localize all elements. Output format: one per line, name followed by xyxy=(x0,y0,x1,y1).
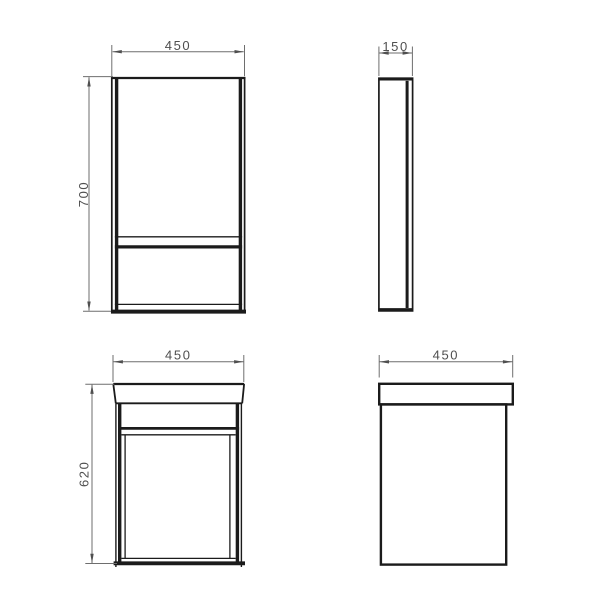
arrowhead-up xyxy=(87,77,90,87)
drawing-canvas: 450 700 150 xyxy=(0,0,601,600)
mirror-front-height-label: 700 xyxy=(76,181,91,208)
vanity-side-object-lines xyxy=(379,384,513,565)
mirror-front-dimension-lines xyxy=(83,45,245,311)
mirror-side-depth-label: 150 xyxy=(382,39,409,54)
vanity-front-object-lines xyxy=(113,384,245,567)
arrowhead-down xyxy=(90,554,93,564)
technical-drawing: 450 700 150 xyxy=(0,0,601,600)
arrowhead-right xyxy=(503,360,513,363)
vanity-side-width-label: 450 xyxy=(433,348,460,363)
vanity-front-height-label: 620 xyxy=(77,461,92,488)
arrowhead-down xyxy=(87,302,90,312)
arrowhead-right xyxy=(235,50,245,53)
vanity-side-countertop-outline xyxy=(379,384,513,405)
mirror-side-labels: 150 xyxy=(382,39,409,54)
mirror-side-object-lines xyxy=(379,78,413,311)
arrowhead-left xyxy=(113,360,123,363)
vanity-side-body-outline xyxy=(381,404,506,564)
vanity-front-labels: 450 620 xyxy=(77,348,192,487)
vanity-front-dimension-lines xyxy=(85,355,244,564)
mirror-front-width-label: 450 xyxy=(165,38,192,53)
view-mirror-side: 150 xyxy=(379,39,413,311)
vanity-front-width-label: 450 xyxy=(165,348,192,363)
arrowhead-right xyxy=(234,360,244,363)
vanity-front-basin-right-edge xyxy=(242,384,244,403)
view-mirror-front: 450 700 xyxy=(76,38,246,314)
mirror-front-labels: 450 700 xyxy=(76,38,191,207)
view-vanity-front: 450 620 xyxy=(77,348,245,567)
arrowhead-left xyxy=(112,50,122,53)
view-vanity-side: 450 xyxy=(379,348,513,565)
vanity-front-basin-left-edge xyxy=(113,384,116,403)
vanity-side-labels: 450 xyxy=(433,348,460,363)
mirror-front-object-lines xyxy=(111,77,246,313)
arrowhead-up xyxy=(90,384,93,394)
mirror-front-arrowheads xyxy=(87,50,244,311)
arrowhead-left xyxy=(380,360,390,363)
